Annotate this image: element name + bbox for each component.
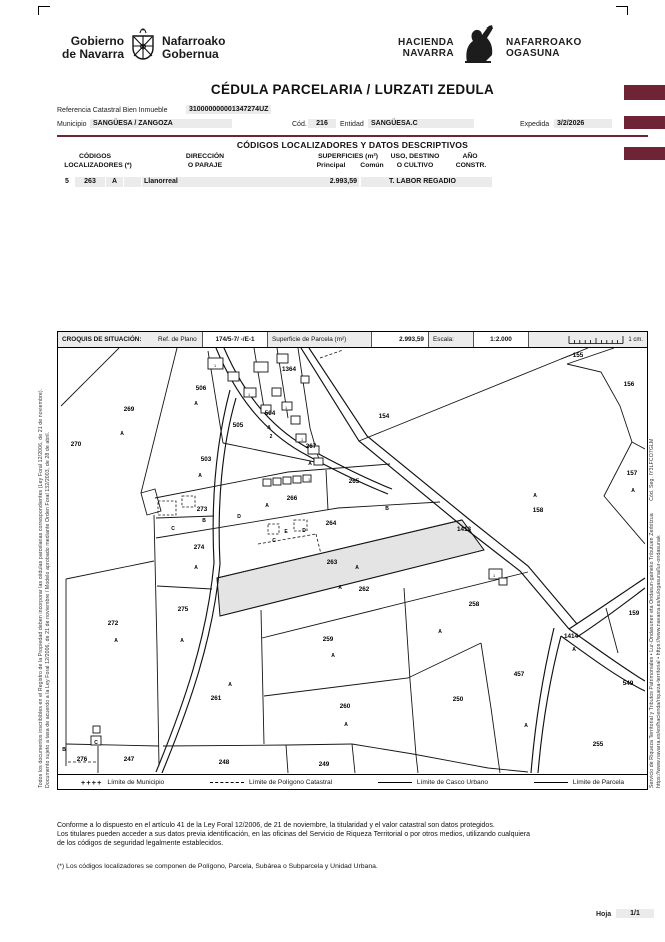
gov-logo-line1: Gobierno xyxy=(62,35,124,48)
row-anio xyxy=(463,177,492,187)
row-unidad xyxy=(124,177,141,187)
parcel-label-A: A xyxy=(267,425,271,431)
parcel-label-250: 250 xyxy=(453,696,464,703)
col-anio-1: AÑO xyxy=(462,153,477,160)
parcel-label-549: 549 xyxy=(623,680,634,687)
parcel-label-156: 156 xyxy=(624,381,635,388)
navarra-shield-icon xyxy=(130,28,156,67)
escala-label: Escala: xyxy=(429,332,473,347)
cod-value: 216 xyxy=(308,119,336,128)
municipio-value: SANGÜESA / ZANGOZA xyxy=(90,119,232,128)
parcel-label-A: A xyxy=(524,723,528,729)
parcel-label-276: 276 xyxy=(77,756,88,763)
parcel-label-247: 247 xyxy=(124,756,135,763)
side-note-right-outer: https://www.navarra.es/es/hacienda/rique… xyxy=(656,333,662,788)
row-poligono: 5 xyxy=(60,177,74,187)
entidad-label: Entidad xyxy=(340,121,364,128)
hacienda-text-eu: NAFARROAKO OGASUNA xyxy=(506,37,582,59)
parcel-map: 2702695061364504505503267265266273264263… xyxy=(58,348,645,773)
parcel-label-C: C xyxy=(94,740,98,746)
maroon-band-2 xyxy=(624,116,665,129)
parcel-label-266: 266 xyxy=(287,495,298,502)
expedida-label: Expedida xyxy=(520,121,549,128)
legend-solid-symbol xyxy=(378,782,412,783)
parcel-label-A: A xyxy=(265,503,269,509)
parcel-label-A: A xyxy=(338,585,342,591)
col-principal: Principal xyxy=(317,162,346,169)
row-direccion: Llanorreal xyxy=(142,177,322,187)
parcel-label-261: 261 xyxy=(211,695,222,702)
parcel-label-1: 1 xyxy=(285,406,287,410)
row-uso: T. LABOR REGADIO xyxy=(387,177,463,187)
parcel-label-C: C xyxy=(272,538,276,544)
parcel-label-A: A xyxy=(120,431,124,437)
municipio-label: Municipio xyxy=(57,121,87,128)
hoja-value: 1/1 xyxy=(616,909,654,918)
side-note-left-inner: Documento sujeto a tasa de acuerdo a la … xyxy=(45,333,51,788)
croquis-title: CROQUIS DE SITUACIÓN: xyxy=(58,332,154,347)
maroon-band-1 xyxy=(624,85,665,100)
parcel-label-154: 154 xyxy=(379,413,390,420)
parcel-label-A: A xyxy=(228,682,232,688)
parcel-label-E: E xyxy=(284,529,288,535)
hacienda-navarra-logo: HACIENDA NAVARRA NAFARROAKO OGASUNA xyxy=(398,24,582,71)
hacienda-line1: HACIENDA xyxy=(398,37,454,48)
legend-item: Límite de Parcela xyxy=(534,779,624,786)
parcel-label-A: A xyxy=(194,401,198,407)
maroon-divider xyxy=(57,135,648,137)
parcel-label-259: 259 xyxy=(323,636,334,643)
parcel-label-267: 267 xyxy=(306,443,317,450)
row-sup-principal: 2.993,59 xyxy=(300,177,359,187)
ref-catastral-value: 310000000001347274UZ xyxy=(186,105,271,114)
footer-line3: de los códigos de seguridad legalmente e… xyxy=(57,839,648,848)
superficie-label: Superficie de Parcela (m²) xyxy=(268,332,371,347)
parcel-label-A: A xyxy=(308,461,312,467)
legend-label: Límite de Municipio xyxy=(107,779,164,786)
legend-item: Límite de Polígono Catastral xyxy=(210,779,332,786)
cedula-parcelaria-page: Gobierno de Navarra Nafarroako Gobernua … xyxy=(0,0,665,942)
parcel-label-503: 503 xyxy=(201,456,212,463)
hoja-label: Hoja xyxy=(596,911,611,918)
parcel-label-158: 158 xyxy=(533,507,544,514)
superficie-value: 2.993,59 xyxy=(371,332,429,347)
gov-logo-line3: Nafarroako xyxy=(162,35,225,48)
crop-mark-top-left xyxy=(38,6,50,15)
parcel-label-504: 504 xyxy=(265,410,276,417)
parcel-label-265: 265 xyxy=(349,478,360,485)
parcel-label-A: A xyxy=(198,473,202,479)
gobierno-navarra-logo: Gobierno de Navarra Nafarroako Gobernua xyxy=(62,28,225,67)
gov-logo-line4: Gobernua xyxy=(162,48,225,61)
section-title: CÓDIGOS LOCALIZADORES Y DATOS DESCRIPTIV… xyxy=(57,140,648,150)
parcel-label-457: 457 xyxy=(514,671,525,678)
parcel-label-1: 1 xyxy=(493,574,495,578)
parcel-label-272: 272 xyxy=(108,620,119,627)
gov-logo-line2: de Navarra xyxy=(62,48,124,61)
parcel-label-275: 275 xyxy=(178,606,189,613)
parcel-label-264: 264 xyxy=(326,520,337,527)
parcel-label-260: 260 xyxy=(340,703,351,710)
parcel-label-262: 262 xyxy=(359,586,370,593)
footer-note: (*) Los códigos localizadores se compone… xyxy=(57,863,378,870)
ref-plano-label: Ref. de Plano xyxy=(154,332,202,347)
footer-line1: Conforme a lo dispuesto en el artículo 4… xyxy=(57,821,648,830)
legend-label: Límite de Parcela xyxy=(573,779,624,786)
parcel-label-274: 274 xyxy=(194,544,205,551)
croquis-panel: CROQUIS DE SITUACIÓN: Ref. de Plano 174/… xyxy=(57,331,648,790)
entidad-value: SANGÜESA.C xyxy=(368,119,474,128)
scale-caption: 1 cm. xyxy=(628,337,643,343)
parcel-label-B: B xyxy=(62,747,66,753)
parcel-label-A: A xyxy=(631,488,635,494)
legend-item: Límite de Casco Urbano xyxy=(378,779,488,786)
parcel-label-A: A xyxy=(344,722,348,728)
parcel-label-505: 505 xyxy=(233,422,244,429)
parcel-label-157: 157 xyxy=(627,470,638,477)
hacienda-line4: OGASUNA xyxy=(506,48,582,59)
parcel-label-2: 2 xyxy=(270,434,273,440)
row-parcela: 263 xyxy=(75,177,105,187)
parcel-label-B: B xyxy=(385,506,389,512)
col-anio-2: CONSTR. xyxy=(456,162,487,169)
expedida-value: 3/2/2026 xyxy=(554,119,612,128)
parcel-label-A: A xyxy=(180,638,184,644)
parcel-label-B: B xyxy=(202,518,206,524)
col-superficies: SUPERFICIES (m²) xyxy=(318,153,378,160)
col-direccion-1: DIRECCIÓN xyxy=(186,153,224,160)
col-uso-1: USO, DESTINO xyxy=(391,153,440,160)
parcel-label-263: 263 xyxy=(327,559,338,566)
parcel-label-258: 258 xyxy=(469,601,480,608)
parcel-label-506: 506 xyxy=(196,385,207,392)
ref-catastral-label: Referencia Catastral Bien Inmueble xyxy=(57,107,168,114)
legend-label: Límite de Polígono Catastral xyxy=(249,779,332,786)
col-codigos-2: LOCALIZADORES (*) xyxy=(64,162,132,169)
croquis-header: CROQUIS DE SITUACIÓN: Ref. de Plano 174/… xyxy=(58,332,647,348)
col-direccion-2: O PARAJE xyxy=(188,162,222,169)
ref-plano-value: 174/5-7/ -/E-1 xyxy=(202,332,268,347)
hacienda-line3: NAFARROAKO xyxy=(506,37,582,48)
legend-label: Límite de Casco Urbano xyxy=(417,779,488,786)
parcel-label-C: C xyxy=(171,526,175,532)
parcel-label-270: 270 xyxy=(71,441,82,448)
parcel-label-A: A xyxy=(533,493,537,499)
parcel-label-1: 1 xyxy=(308,478,310,482)
parcel-label-1414: 1414 xyxy=(564,633,579,640)
parcel-label-255: 255 xyxy=(593,741,604,748)
hacienda-figure-icon xyxy=(459,24,501,71)
parcel-label-249: 249 xyxy=(319,761,330,768)
parcel-label-A: A xyxy=(438,629,442,635)
footer-line2: Los titulares pueden acceder a sus datos… xyxy=(57,830,648,839)
col-codigos-1: CÓDIGOS xyxy=(79,153,111,160)
col-comun: Común xyxy=(360,162,383,169)
hacienda-text-es: HACIENDA NAVARRA xyxy=(398,37,454,59)
legend-item: ++++Límite de Municipio xyxy=(81,778,164,787)
hacienda-line2: NAVARRA xyxy=(398,48,454,59)
legend-dash-symbol xyxy=(210,782,244,783)
parcel-label-1413: 1413 xyxy=(457,526,472,533)
parcel-label-A: A xyxy=(572,647,576,653)
parcel-label-D: D xyxy=(237,514,241,520)
parcel-label-A: A xyxy=(114,638,118,644)
side-note-right-inner: Servicio de Riqueza Territorial y Tribut… xyxy=(649,333,655,788)
croquis-map: 2702695061364504505503267265266273264263… xyxy=(58,348,647,773)
parcel-label-269: 269 xyxy=(124,406,135,413)
parcel-label-159: 159 xyxy=(629,610,640,617)
side-note-left-outer: Todos los documentos inscribibles en el … xyxy=(38,333,44,788)
parcel-label-A: A xyxy=(355,565,359,571)
legend-solid-symbol xyxy=(534,782,568,783)
row-subarea: A xyxy=(106,177,123,187)
page-title: CÉDULA PARCELARIA / LURZATI ZEDULA xyxy=(57,82,648,97)
escala-value: 1:2.000 xyxy=(473,332,529,347)
parcel-label-273: 273 xyxy=(197,506,208,513)
ruler-icon xyxy=(568,335,624,345)
parcel-label-155: 155 xyxy=(573,352,584,359)
parcel-label-1: 1 xyxy=(214,364,216,368)
scale-ruler: 1 cm. xyxy=(529,332,647,347)
map-legend: ++++Límite de MunicipioLímite de Polígon… xyxy=(58,774,647,789)
legend-plus-symbol: ++++ xyxy=(81,778,103,787)
parcel-label-1364: 1364 xyxy=(282,366,297,373)
parcel-label-1: 1 xyxy=(248,393,250,397)
parcel-label-248: 248 xyxy=(219,759,230,766)
parcel-label-D: D xyxy=(302,528,306,534)
crop-mark-top-right xyxy=(616,6,628,15)
parcel-label-A: A xyxy=(331,653,335,659)
cod-label: Cód. xyxy=(292,121,307,128)
gov-logo-text-es: Gobierno de Navarra xyxy=(62,35,124,61)
gov-logo-text-eu: Nafarroako Gobernua xyxy=(162,35,225,61)
col-uso-2: O CULTIVO xyxy=(397,162,434,169)
parcel-label-A: A xyxy=(194,565,198,571)
parcel-label-1: 1 xyxy=(301,438,303,442)
